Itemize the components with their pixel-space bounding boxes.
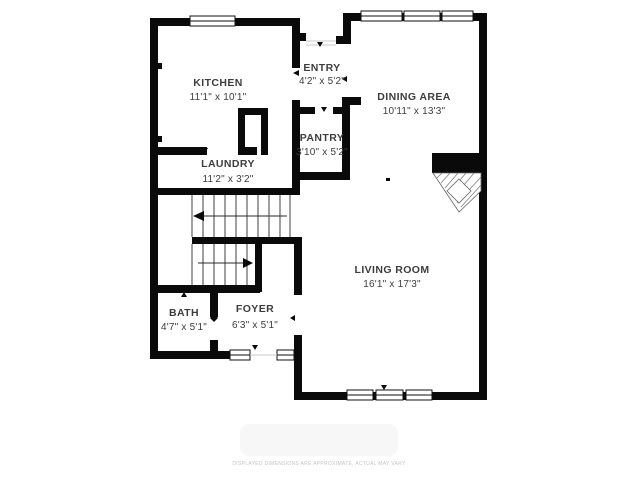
- wall-exterior-right: [479, 13, 487, 400]
- wall-entry-right-foot: [336, 36, 344, 44]
- tick-front-door: [252, 345, 258, 350]
- floor-plan-drawing: KITCHEN 11'1" x 10'1" ENTRY 4'2" x 5'2" …: [0, 0, 640, 480]
- room-label-pantry: PANTRY: [300, 132, 344, 144]
- room-label-kitchen: KITCHEN: [193, 77, 242, 89]
- wall-closet-right: [261, 108, 268, 155]
- watermark-blob: [240, 424, 398, 456]
- room-dims-dining-area: 10'11" x 13'3": [383, 106, 446, 117]
- room-dims-laundry: 11'2" x 3'2": [203, 174, 254, 185]
- room-dims-pantry: 3'10" x 5'2": [296, 147, 348, 158]
- tick-kitchen-left-wall: [158, 63, 162, 69]
- room-label-bath: BATH: [169, 307, 199, 319]
- stair-arrow-head-left: [193, 211, 204, 221]
- dining-window-2: [404, 11, 440, 21]
- living-window-2: [376, 390, 403, 400]
- living-window-1: [347, 390, 373, 400]
- kitchen-window: [190, 16, 235, 26]
- dining-window-3: [442, 11, 473, 21]
- wall-kitchen-right: [292, 18, 300, 68]
- foyer-window-1: [230, 350, 250, 360]
- wall-pantry-top-a: [300, 107, 315, 114]
- fireplace-block: [432, 153, 487, 173]
- room-dims-living-room: 16'1" x 17'3": [363, 279, 421, 290]
- floor-plan: KITCHEN 11'1" x 10'1" ENTRY 4'2" x 5'2" …: [0, 0, 640, 480]
- wall-living-left-mid: [294, 237, 302, 295]
- room-label-entry: ENTRY: [303, 62, 340, 74]
- wall-pantry-stub: [343, 97, 361, 105]
- wall-stair-side: [255, 237, 262, 292]
- tick-pantry-door: [321, 107, 327, 112]
- tick-laundry-left-wall: [158, 136, 162, 142]
- wall-stair-bottom: [150, 285, 260, 293]
- stairs-lower-run: [192, 244, 247, 285]
- fireplace-hearth: [433, 173, 481, 212]
- wall-foyer-living: [294, 335, 302, 400]
- tick-living-top: [386, 178, 390, 181]
- tick-foyer-living: [290, 315, 295, 321]
- room-label-living-room: LIVING ROOM: [355, 264, 430, 276]
- room-label-laundry: LAUNDRY: [201, 158, 255, 170]
- living-window-3: [406, 390, 432, 400]
- wall-stair-middle: [192, 237, 302, 244]
- room-dims-entry: 4'2" x 5'2": [299, 76, 345, 87]
- room-label-foyer: FOYER: [236, 303, 274, 315]
- room-label-dining-area: DINING AREA: [377, 91, 450, 103]
- room-dims-bath: 4'7" x 5'1": [161, 322, 207, 333]
- stair-arrow-head-right: [243, 258, 253, 268]
- foyer-window-2: [277, 350, 294, 360]
- tick-living-bottom: [381, 385, 387, 390]
- room-dims-foyer: 6'3" x 5'1": [232, 320, 278, 331]
- wall-pantry-bottom: [292, 172, 350, 180]
- wall-bath-right-bottom: [210, 340, 218, 358]
- dining-window-1: [361, 11, 402, 21]
- wall-closet-left: [238, 108, 245, 155]
- wall-dining-left-top: [343, 20, 351, 44]
- wall-pantry-top-b: [333, 107, 343, 114]
- wall-bath-bottom: [150, 351, 232, 359]
- disclaimer-text: DISPLAYED DIMENSIONS ARE APPROXIMATE, AC…: [232, 461, 406, 467]
- room-dims-kitchen: 11'1" x 10'1": [190, 92, 247, 103]
- wall-laundry-top-left: [150, 147, 207, 155]
- wall-entry-left-step: [300, 33, 306, 41]
- tick-right-wall: [479, 219, 486, 226]
- wall-laundry-bottom: [150, 188, 293, 195]
